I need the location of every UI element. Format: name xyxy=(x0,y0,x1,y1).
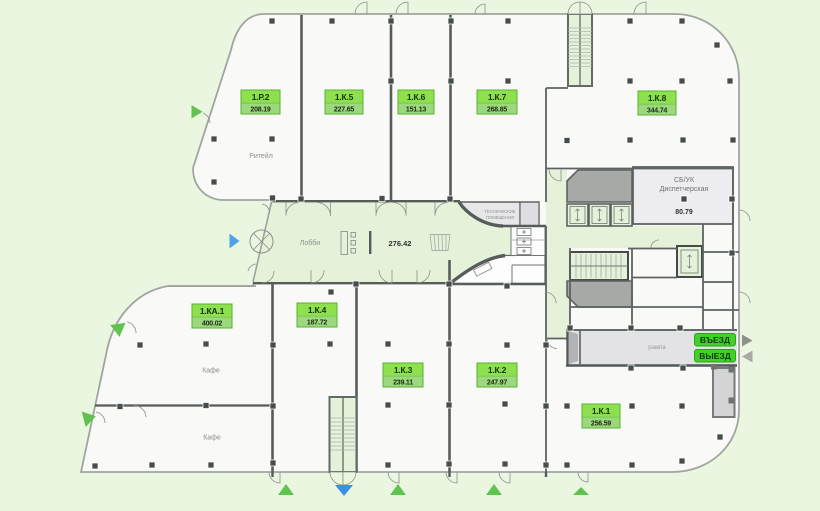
svg-text:256.59: 256.59 xyxy=(591,421,612,428)
svg-text:ТЕХНИЧЕСКИЕ: ТЕХНИЧЕСКИЕ xyxy=(484,209,515,214)
svg-text:247.97: 247.97 xyxy=(487,380,508,387)
svg-text:1.КА.1: 1.КА.1 xyxy=(200,306,225,316)
svg-text:276.42: 276.42 xyxy=(389,239,412,248)
svg-text:1.К.5: 1.К.5 xyxy=(335,92,354,102)
svg-text:Лобби: Лобби xyxy=(300,239,321,247)
svg-text:268.85: 268.85 xyxy=(487,107,508,114)
svg-text:1.К.1: 1.К.1 xyxy=(592,406,611,416)
svg-text:80.79: 80.79 xyxy=(675,209,693,216)
svg-text:Кафе: Кафе xyxy=(202,368,220,375)
svg-text:1.К.4: 1.К.4 xyxy=(308,305,327,315)
svg-text:227.65: 227.65 xyxy=(334,107,355,114)
svg-text:1.К.8: 1.К.8 xyxy=(648,93,667,103)
svg-text:239.11: 239.11 xyxy=(393,380,413,387)
svg-text:1.К.2: 1.К.2 xyxy=(488,365,507,375)
svg-text:ВЪЕЗД: ВЪЕЗД xyxy=(700,335,730,345)
svg-text:151.13: 151.13 xyxy=(406,107,427,114)
svg-text:ВЫЕЗД: ВЫЕЗД xyxy=(699,351,731,361)
svg-text:Кафе: Кафе xyxy=(203,435,221,442)
svg-text:187.72: 187.72 xyxy=(307,320,328,327)
svg-text:1.Р.2: 1.Р.2 xyxy=(252,92,270,102)
svg-text:344.74: 344.74 xyxy=(647,108,668,115)
svg-text:Ритейл: Ритейл xyxy=(249,152,273,160)
svg-text:400.02: 400.02 xyxy=(202,321,223,328)
svg-text:1.К.7: 1.К.7 xyxy=(488,92,507,102)
svg-text:1.К.6: 1.К.6 xyxy=(407,92,426,102)
svg-text:СБ/УК: СБ/УК xyxy=(674,177,695,184)
svg-text:1.К.3: 1.К.3 xyxy=(394,365,413,375)
svg-text:ПОМЕЩЕНИЯ: ПОМЕЩЕНИЯ xyxy=(486,215,514,220)
svg-text:Диспетчерская: Диспетчерская xyxy=(660,186,709,193)
svg-text:208.19: 208.19 xyxy=(250,107,271,114)
svg-text:рампа: рампа xyxy=(648,345,666,351)
